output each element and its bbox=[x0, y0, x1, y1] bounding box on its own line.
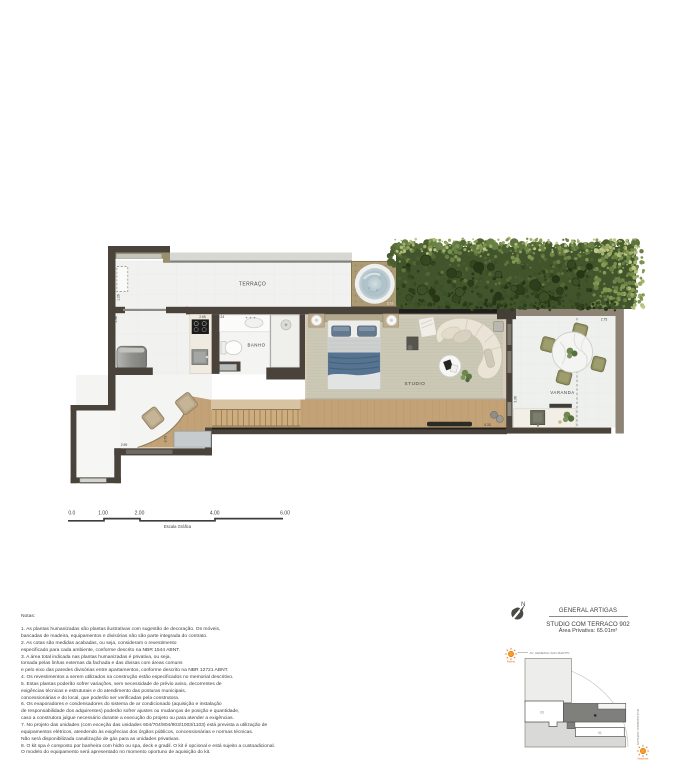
svg-text:2.75: 2.75 bbox=[601, 317, 608, 321]
svg-text:1.00: 1.00 bbox=[98, 511, 108, 517]
svg-text:3.73: 3.73 bbox=[164, 436, 168, 443]
svg-text:0.0: 0.0 bbox=[68, 511, 75, 517]
svg-text:2.00: 2.00 bbox=[135, 511, 145, 517]
svg-text:1.26: 1.26 bbox=[117, 294, 121, 301]
svg-text:03: 03 bbox=[540, 711, 544, 715]
svg-text:2.72: 2.72 bbox=[387, 302, 393, 306]
svg-text:VARANDA: VARANDA bbox=[550, 390, 574, 395]
svg-text:STUDIO: STUDIO bbox=[405, 381, 426, 386]
svg-text:AV. GENERAL SAN MARTIN: AV. GENERAL SAN MARTIN bbox=[530, 651, 570, 655]
svg-text:RUA GENERAL ARTIGAS: RUA GENERAL ARTIGAS bbox=[636, 709, 640, 745]
svg-text:N: N bbox=[521, 601, 525, 608]
svg-text:3.38: 3.38 bbox=[514, 396, 518, 402]
svg-text:01: 01 bbox=[598, 731, 602, 735]
svg-text:2.59: 2.59 bbox=[121, 443, 128, 447]
svg-text:9.33: 9.33 bbox=[484, 423, 490, 427]
svg-text:2.24: 2.24 bbox=[218, 315, 225, 319]
svg-text:4.00: 4.00 bbox=[210, 511, 220, 517]
svg-text:1.98: 1.98 bbox=[114, 316, 118, 323]
svg-text:BANHO: BANHO bbox=[247, 342, 265, 347]
svg-text:Escala Gráfica: Escala Gráfica bbox=[164, 524, 192, 529]
svg-text:6.00: 6.00 bbox=[280, 511, 290, 517]
svg-text:2.65: 2.65 bbox=[199, 315, 206, 319]
svg-text:TERRAÇO: TERRAÇO bbox=[239, 282, 266, 288]
svg-text:Nascente: Nascente bbox=[638, 757, 650, 761]
svg-text:1.96: 1.96 bbox=[71, 465, 75, 472]
svg-text:Poente: Poente bbox=[507, 660, 516, 664]
